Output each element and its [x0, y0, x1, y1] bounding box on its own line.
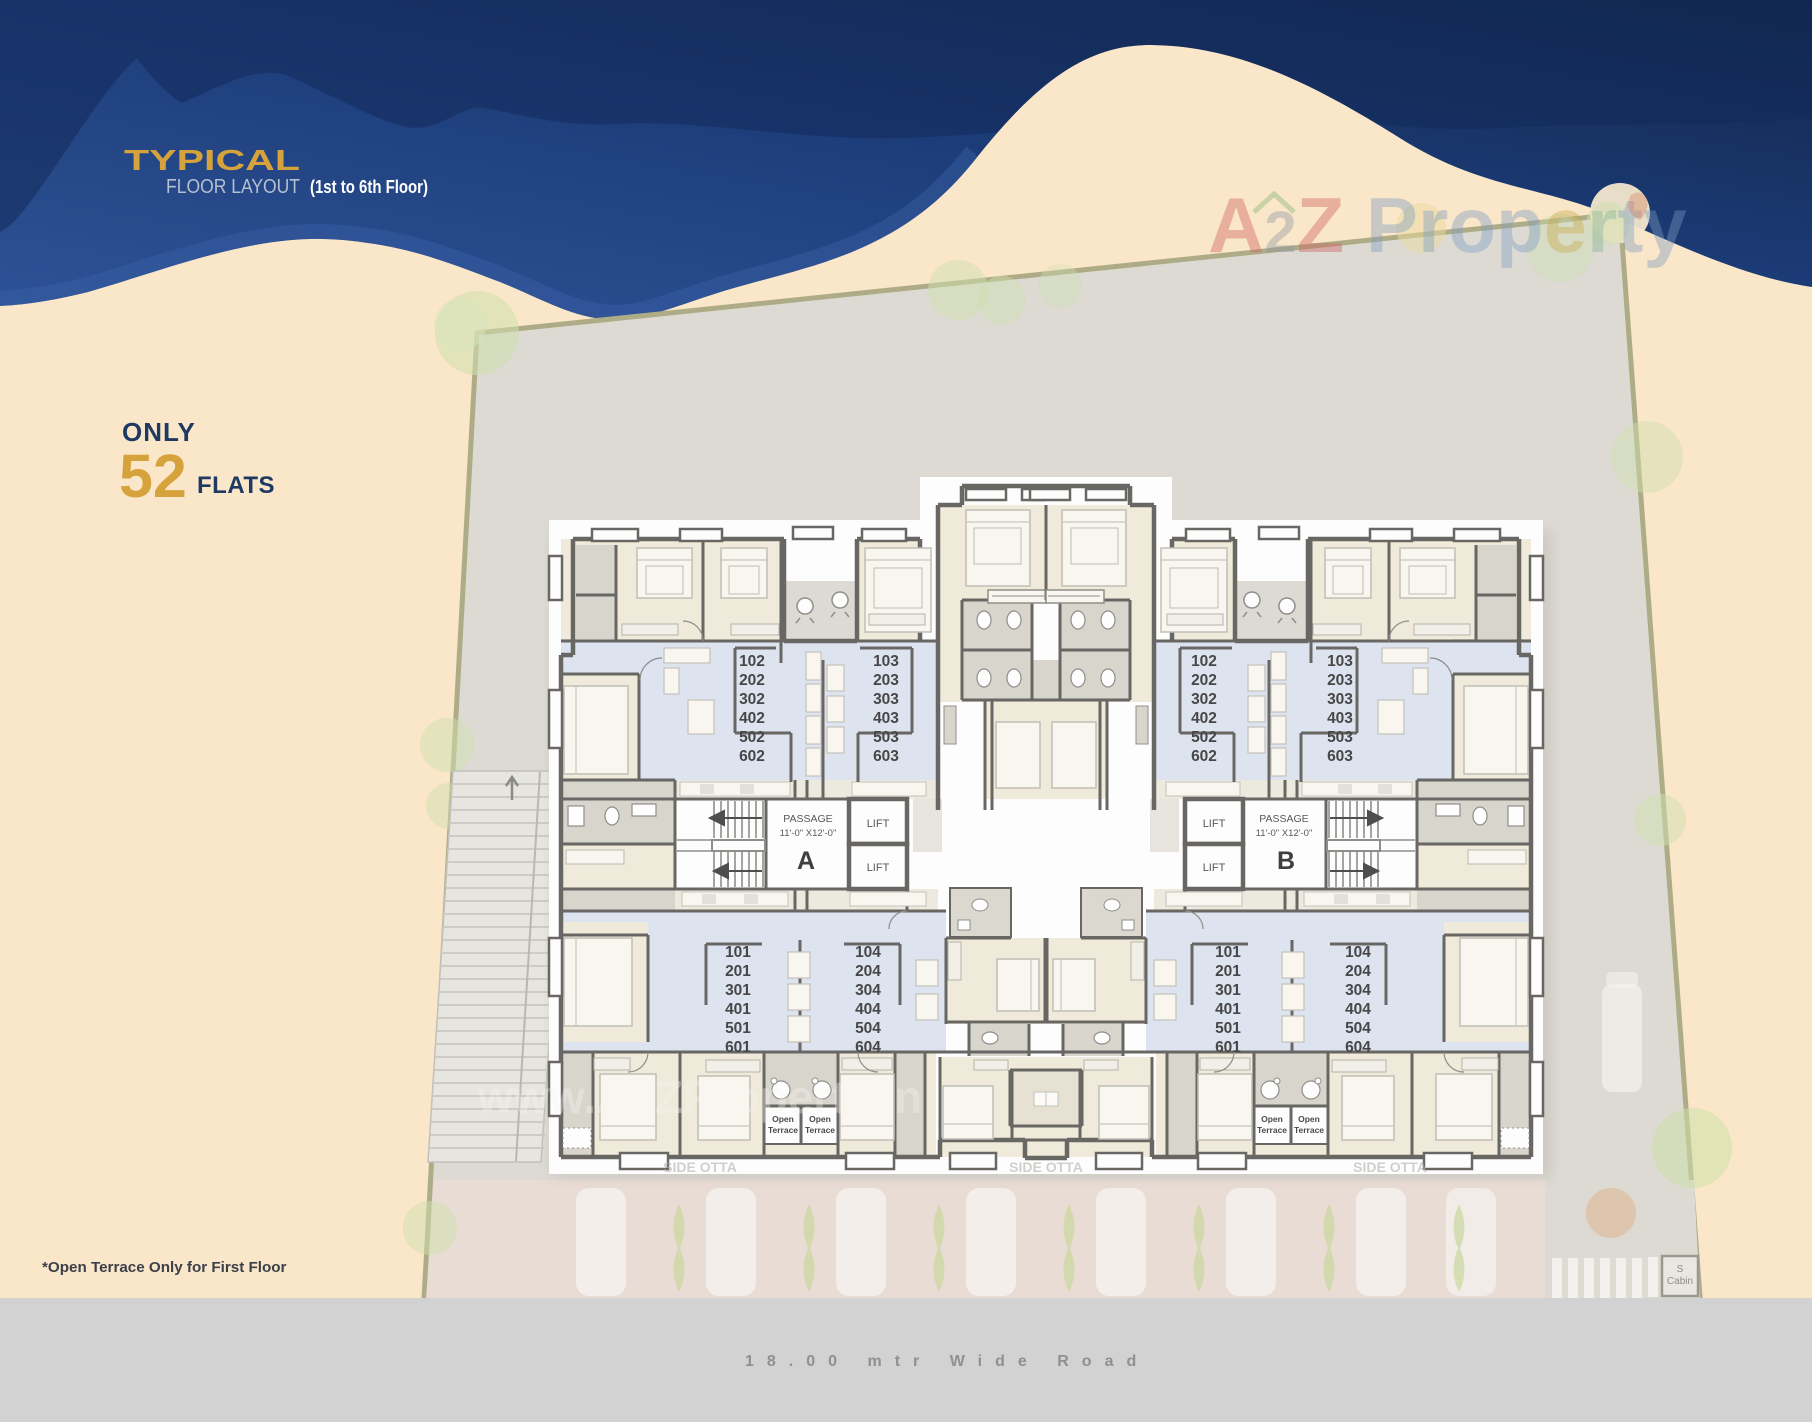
svg-text:203: 203 — [873, 672, 899, 689]
svg-text:PASSAGE: PASSAGE — [783, 813, 832, 825]
svg-text:604: 604 — [855, 1039, 881, 1056]
svg-text:504: 504 — [855, 1020, 881, 1037]
svg-text:301: 301 — [1215, 982, 1241, 999]
svg-text:*Open Terrace Only for First F: *Open Terrace Only for First Floor — [42, 1259, 287, 1276]
svg-text:B: B — [1277, 847, 1295, 875]
svg-text:304: 304 — [1345, 982, 1371, 999]
svg-text:302: 302 — [1191, 691, 1217, 708]
svg-text:403: 403 — [873, 710, 899, 727]
svg-text:104: 104 — [1345, 944, 1371, 961]
svg-text:503: 503 — [873, 729, 899, 746]
svg-text:SIDE OTTA: SIDE OTTA — [1009, 1159, 1083, 1175]
svg-text:603: 603 — [1327, 748, 1353, 765]
svg-text:52: 52 — [119, 442, 187, 510]
svg-text:501: 501 — [1215, 1020, 1241, 1037]
svg-text:604: 604 — [1345, 1039, 1371, 1056]
svg-text:LIFT: LIFT — [867, 862, 890, 874]
svg-text:101: 101 — [725, 944, 751, 961]
svg-text:301: 301 — [725, 982, 751, 999]
svg-text:302: 302 — [739, 691, 765, 708]
svg-text:Open: Open — [1261, 1114, 1283, 1124]
svg-text:103: 103 — [873, 653, 899, 670]
svg-text:18.00 mtr Wide Road: 18.00 mtr Wide Road — [745, 1353, 1149, 1370]
svg-text:403: 403 — [1327, 710, 1353, 727]
svg-text:Cabin: Cabin — [1667, 1276, 1693, 1287]
svg-text:102: 102 — [739, 653, 765, 670]
svg-text:401: 401 — [1215, 1001, 1241, 1018]
svg-text:PASSAGE: PASSAGE — [1259, 813, 1308, 825]
svg-text:501: 501 — [725, 1020, 751, 1037]
svg-text:303: 303 — [873, 691, 899, 708]
svg-text:Terrace: Terrace — [1257, 1125, 1287, 1135]
svg-text:602: 602 — [1191, 748, 1217, 765]
svg-text:503: 503 — [1327, 729, 1353, 746]
svg-text:104: 104 — [855, 944, 881, 961]
svg-text:SIDE OTTA: SIDE OTTA — [1353, 1159, 1427, 1175]
svg-text:203: 203 — [1327, 672, 1353, 689]
svg-text:601: 601 — [725, 1039, 751, 1056]
svg-text:601: 601 — [1215, 1039, 1241, 1056]
svg-text:201: 201 — [725, 963, 751, 980]
svg-text:FLATS: FLATS — [197, 472, 275, 499]
svg-text:LIFT: LIFT — [867, 818, 890, 830]
svg-text:204: 204 — [1345, 963, 1371, 980]
svg-text:103: 103 — [1327, 653, 1353, 670]
svg-text:404: 404 — [855, 1001, 881, 1018]
svg-text:303: 303 — [1327, 691, 1353, 708]
svg-text:204: 204 — [855, 963, 881, 980]
svg-text:502: 502 — [739, 729, 765, 746]
svg-text:603: 603 — [873, 748, 899, 765]
svg-text:SIDE OTTA: SIDE OTTA — [663, 1159, 737, 1175]
svg-text:Open: Open — [1298, 1114, 1320, 1124]
svg-text:LIFT: LIFT — [1203, 862, 1226, 874]
svg-text:A: A — [797, 847, 815, 875]
svg-text:402: 402 — [1191, 710, 1217, 727]
svg-text:FLOOR LAYOUT: FLOOR LAYOUT — [166, 176, 300, 198]
svg-text:Terrace: Terrace — [768, 1125, 798, 1135]
svg-text:402: 402 — [739, 710, 765, 727]
svg-text:Terrace: Terrace — [1294, 1125, 1324, 1135]
svg-text:201: 201 — [1215, 963, 1241, 980]
svg-text:502: 502 — [1191, 729, 1217, 746]
svg-text:304: 304 — [855, 982, 881, 999]
svg-text:11'-0" X12'-0": 11'-0" X12'-0" — [1256, 828, 1313, 839]
svg-text:Terrace: Terrace — [805, 1125, 835, 1135]
svg-text:202: 202 — [1191, 672, 1217, 689]
svg-text:11'-0" X12'-0": 11'-0" X12'-0" — [780, 828, 837, 839]
svg-text:504: 504 — [1345, 1020, 1371, 1037]
svg-text:LIFT: LIFT — [1203, 818, 1226, 830]
svg-text:602: 602 — [739, 748, 765, 765]
svg-text:101: 101 — [1215, 944, 1241, 961]
svg-text:401: 401 — [725, 1001, 751, 1018]
svg-text:TYPICAL: TYPICAL — [124, 145, 300, 177]
svg-text:(1st to 6th Floor): (1st to 6th Floor) — [310, 177, 428, 197]
svg-text:404: 404 — [1345, 1001, 1371, 1018]
svg-text:www.A2ZProperty.in: www.A2ZProperty.in — [477, 1071, 923, 1123]
svg-text:202: 202 — [739, 672, 765, 689]
svg-text:S: S — [1677, 1264, 1684, 1275]
svg-text:102: 102 — [1191, 653, 1217, 670]
